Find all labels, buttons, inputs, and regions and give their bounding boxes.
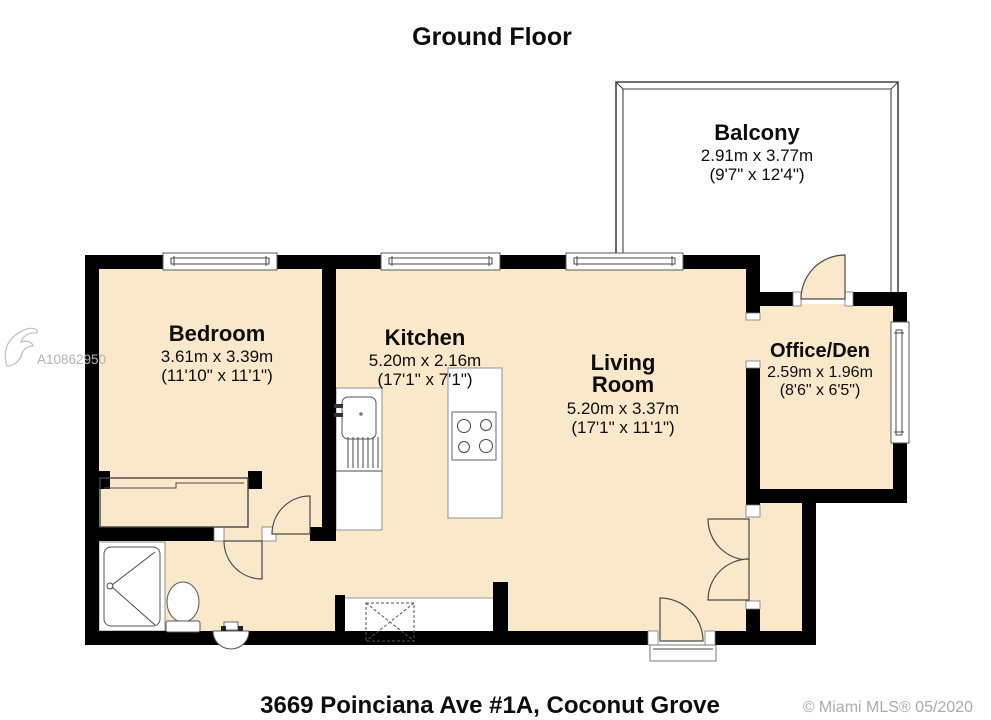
room-dim-metric: 5.20m x 2.16m	[369, 351, 481, 370]
main-floor	[92, 262, 760, 638]
kitchen-window	[381, 253, 500, 270]
room-dim-metric: 2.59m x 1.96m	[767, 364, 873, 381]
copyright-line: © Miami MLS® 05/2020	[803, 699, 973, 716]
balcony-door	[801, 255, 845, 299]
room-name-balcony: Balcony	[714, 120, 800, 145]
room-dim-imperial: (17'1" x 11'1")	[571, 418, 674, 437]
room-dim-imperial: (8'6" x 6'5")	[780, 382, 861, 399]
watermark-id: A10862950	[37, 352, 106, 367]
room-dim-metric: 3.61m x 3.39m	[161, 347, 273, 366]
floor-plan-page: A10862950 Ground Floor Balcony 2.91m x 3…	[0, 0, 991, 720]
bedroom-window	[163, 253, 277, 270]
cooktop	[452, 412, 496, 460]
page-title: Ground Floor	[412, 23, 572, 51]
address-line: 3669 Poinciana Ave #1A, Coconut Grove	[260, 692, 720, 719]
room-dim-metric: 5.20m x 3.37m	[567, 399, 679, 418]
toilet	[166, 582, 200, 632]
room-dim-imperial: (9'7" x 12'4")	[709, 165, 804, 184]
living-room-window	[566, 253, 683, 270]
room-dim-imperial: (11'10" x 11'1")	[161, 366, 273, 385]
room-dim-metric: 2.91m x 3.77m	[701, 146, 813, 165]
entry-threshold	[650, 645, 716, 661]
mls-logo-icon	[5, 328, 37, 366]
balcony-label: Balcony 2.91m x 3.77m (9'7" x 12'4")	[701, 120, 813, 184]
office-window	[891, 322, 909, 443]
bedroom-label: Bedroom 3.61m x 3.39m (11'10" x 11'1")	[161, 321, 273, 385]
room-name-office: Office/Den	[770, 340, 870, 362]
room-dim-imperial: (17'1" x 7'1")	[377, 370, 472, 389]
room-name-living-2: Room	[592, 372, 654, 397]
office-den-label: Office/Den 2.59m x 1.96m (8'6" x 6'5")	[767, 340, 873, 399]
shower	[104, 547, 160, 626]
room-name-bedroom: Bedroom	[169, 321, 266, 346]
floor-plan-drawing: A10862950 Ground Floor Balcony 2.91m x 3…	[0, 0, 991, 720]
kitchen-label: Kitchen 5.20m x 2.16m (17'1" x 7'1")	[369, 325, 481, 389]
room-name-kitchen: Kitchen	[385, 325, 466, 350]
